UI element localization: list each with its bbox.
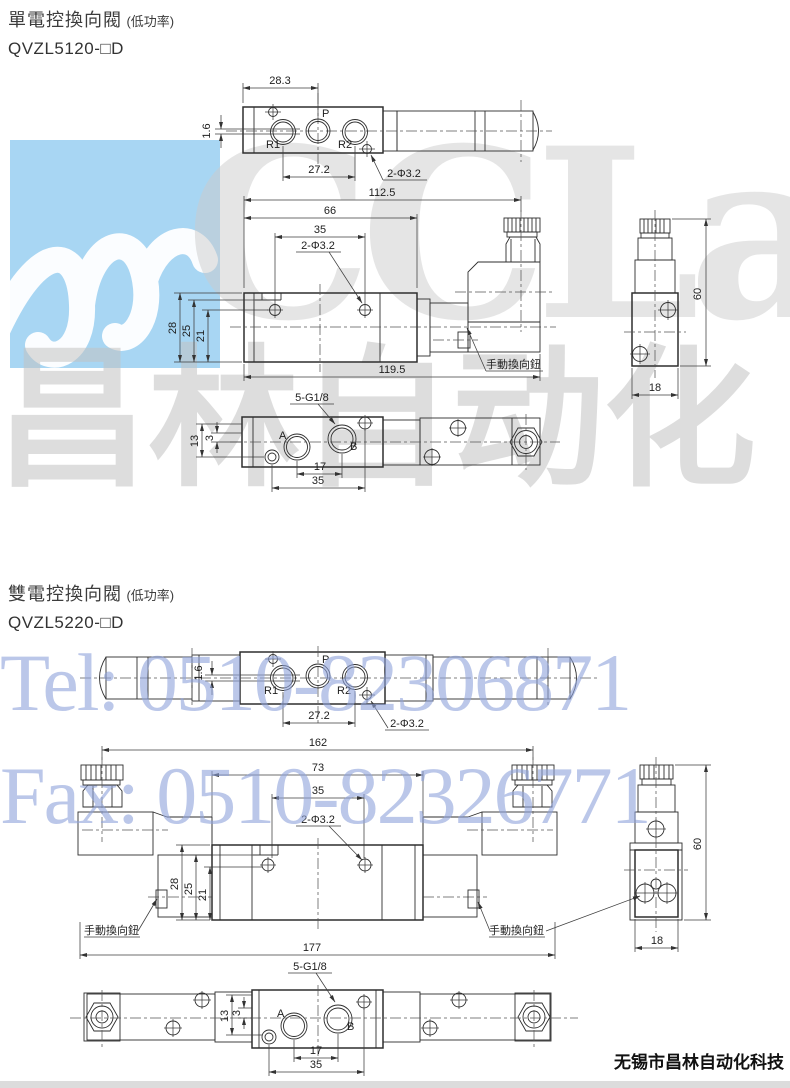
dim-label: 28 xyxy=(169,878,181,890)
hole-callout: 2-Φ3.2 xyxy=(390,718,424,730)
port-label-r1: R1 xyxy=(266,139,280,151)
dim-label: 1.6 xyxy=(201,123,213,138)
dim-label: 25 xyxy=(183,883,195,895)
dim-label: 177 xyxy=(303,942,321,954)
s2-side-view: 60 18 xyxy=(624,757,711,952)
dim-label: 28 xyxy=(167,322,179,334)
port-label-r2: R2 xyxy=(337,685,351,697)
manual-override-label: 手動換向鈕 xyxy=(84,923,139,937)
dim-label: 25 xyxy=(181,325,193,337)
catalog-page: CCLair 昌林自动化 單電控換向閥 (低功率) QVZL5120-□D 雙電… xyxy=(0,0,790,1088)
s1-bottom-view: A B 5-G1/8 13 3 17 35 xyxy=(189,392,560,492)
s1-front-view: 112.5 66 35 2-Φ3.2 xyxy=(167,187,556,381)
hole-callout: 2-Φ3.2 xyxy=(387,168,421,180)
dim-label: 162 xyxy=(309,737,327,749)
s2-bottom-view: A B 5-G1/8 13 3 17 35 xyxy=(70,961,578,1076)
dim-label: 21 xyxy=(195,330,207,342)
section2-note: (低功率) xyxy=(126,588,174,603)
port-label-b: B xyxy=(347,1021,354,1033)
hole-callout: 2-Φ3.2 xyxy=(301,240,335,252)
page-bottom-bar xyxy=(0,1081,790,1088)
dim-label: 60 xyxy=(692,288,704,300)
dim-label: 112.5 xyxy=(369,187,396,199)
s1-top-view: R1 P R2 28.3 1.6 27.2 2-Φ3.2 xyxy=(201,75,552,181)
thread-callout: 5-G1/8 xyxy=(295,392,329,404)
s2-top-view: R1 P R2 1.6 27.2 2-Φ3.2 xyxy=(80,646,600,730)
port-label-r2: R2 xyxy=(338,139,352,151)
section1-note: (低功率) xyxy=(126,14,174,29)
s2-front-view: 162 73 35 2-Φ3.2 xyxy=(78,737,640,959)
dim-label: 35 xyxy=(310,1059,322,1071)
section1-title: 單電控換向閥 xyxy=(8,10,122,30)
dim-label: 13 xyxy=(219,1010,231,1022)
dim-label: 28.3 xyxy=(269,75,290,87)
dim-label: 35 xyxy=(312,475,324,487)
dim-label: 35 xyxy=(314,224,326,236)
dim-label: 66 xyxy=(324,205,336,217)
thread-callout: 5-G1/8 xyxy=(293,961,327,973)
dim-label: 27.2 xyxy=(308,164,329,176)
section1-model: QVZL5120-□D xyxy=(8,39,174,59)
port-label-p: P xyxy=(322,108,329,120)
dim-label: 119.5 xyxy=(379,364,406,376)
company-footer: 无锡市昌林自动化科技 xyxy=(614,1048,784,1073)
dim-label: 13 xyxy=(189,435,201,447)
dim-label: 60 xyxy=(692,838,704,850)
dim-label: 18 xyxy=(651,935,663,947)
dim-label: 17 xyxy=(314,461,326,473)
dim-label: 27.2 xyxy=(308,710,329,722)
dim-label: 3 xyxy=(231,1010,243,1016)
s1-side-view: 60 18 xyxy=(624,210,711,399)
dim-label: 3 xyxy=(204,435,216,441)
dim-label: 73 xyxy=(312,762,324,774)
section2-title: 雙電控換向閥 xyxy=(8,584,122,604)
manual-override-label: 手動換向鈕 xyxy=(489,923,544,937)
port-label-a: A xyxy=(279,430,287,442)
port-label-b: B xyxy=(350,441,357,453)
section1-drawing: R1 P R2 28.3 1.6 27.2 2-Φ3.2 112.5 xyxy=(0,60,790,520)
port-label-r1: R1 xyxy=(264,685,278,697)
dim-label: 35 xyxy=(312,785,324,797)
section1-header: 單電控換向閥 (低功率) QVZL5120-□D xyxy=(8,6,174,59)
dim-label: 1.6 xyxy=(193,665,205,680)
dim-label: 21 xyxy=(197,889,209,901)
section2-drawing: R1 P R2 1.6 27.2 2-Φ3.2 162 73 xyxy=(0,620,790,1088)
port-label-p: P xyxy=(322,654,329,666)
dim-label: 18 xyxy=(649,382,661,394)
manual-override-label: 手動換向鈕 xyxy=(486,357,541,371)
hole-callout: 2-Φ3.2 xyxy=(301,814,335,826)
dim-label: 17 xyxy=(310,1045,322,1057)
